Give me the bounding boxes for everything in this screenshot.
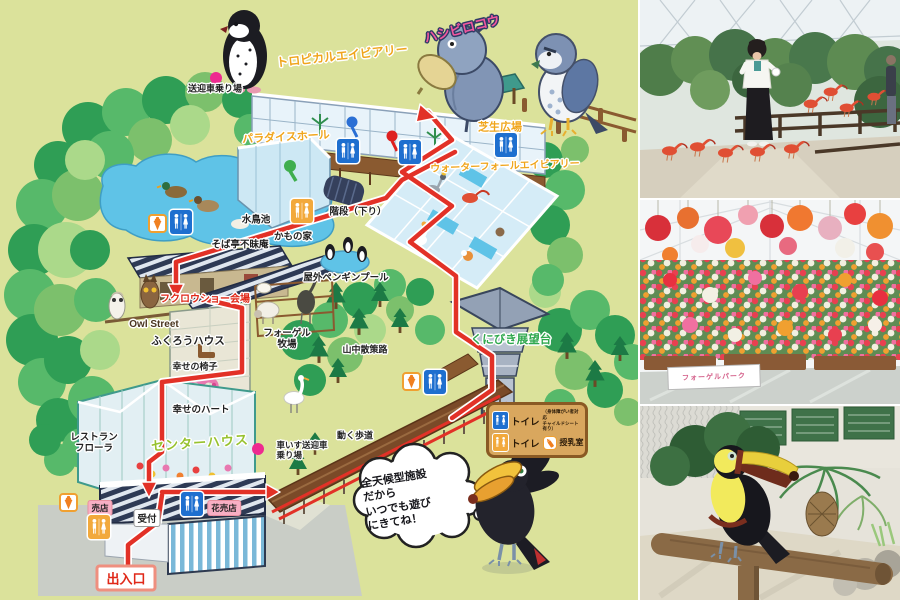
photo-strip: フォーゲルパーク bbox=[638, 0, 900, 600]
label-owl-show: フクロウショー会場 bbox=[160, 294, 250, 306]
label-trail: 山中散策路 bbox=[342, 345, 387, 356]
label-soba: そば亭不昧庵 bbox=[211, 239, 268, 250]
toilet-icon bbox=[170, 210, 192, 234]
legend-toilet-note: （身体障がい者対応 チャイルドシート有り） bbox=[543, 409, 581, 432]
photo-scarlet-ibis-feeding bbox=[640, 0, 900, 198]
label-duck-house: かもの家 bbox=[274, 231, 312, 242]
label-ranch: フォーゲル 牧場 bbox=[263, 328, 311, 350]
screenshot-root: 送迎車乗り場 トロピカルエイビアリー ハシビロコウ 芝生広場 パラダイスホール … bbox=[0, 0, 900, 600]
photo-toucan bbox=[640, 406, 900, 600]
penguin-mascot bbox=[220, 10, 267, 94]
toilet-icon bbox=[88, 515, 110, 539]
map-legend: トイレ （身体障がい者対応 チャイルドシート有り） トイレ 授乳室 bbox=[486, 402, 588, 458]
label-happy-chair: 幸せの椅子 bbox=[172, 362, 217, 373]
label-flower-shop: 花売店 bbox=[208, 501, 240, 515]
legend-nursing-label: 授乳室 bbox=[560, 437, 584, 448]
label-shuttle-stop: 送迎車乗り場 bbox=[188, 84, 242, 95]
toilet-icon bbox=[493, 412, 508, 429]
toilet-icon bbox=[291, 199, 313, 223]
toilet-icon bbox=[493, 434, 508, 451]
label-owl-street: Owl Street bbox=[129, 319, 178, 331]
toilet-icon bbox=[495, 133, 517, 157]
shuttle-stop-dot bbox=[210, 72, 222, 84]
label-moving-walkway: 動く歩道 bbox=[337, 431, 373, 442]
toilet-icon bbox=[424, 370, 446, 394]
label-reception: 受付 bbox=[134, 510, 159, 526]
park-map: 送迎車乗り場 トロピカルエイビアリー ハシビロコウ 芝生広場 パラダイスホール … bbox=[0, 0, 638, 600]
legend-toilet2-label: トイレ bbox=[511, 436, 540, 450]
legend-row-accessible-toilet: トイレ （身体障がい者対応 チャイルドシート有り） bbox=[493, 409, 581, 432]
soft-cream-icon bbox=[59, 493, 78, 512]
penguin-pool bbox=[321, 237, 369, 273]
soft-cream-icon bbox=[402, 372, 421, 391]
label-wheelchair-stop: 車いす送迎車 乗り場 bbox=[276, 440, 327, 460]
label-pond: 水鳥池 bbox=[242, 214, 271, 225]
label-penguin-pool: 屋外ペンギンプール bbox=[303, 272, 388, 283]
label-happy-heart: 幸せのハート bbox=[172, 404, 229, 415]
photo-begonia-garden: フォーゲルパーク bbox=[640, 200, 900, 404]
label-shop: 売店 bbox=[88, 501, 111, 515]
label-stairs-down: 階段（下り） bbox=[329, 206, 386, 217]
label-observatory: くにびき展望台 bbox=[471, 334, 552, 348]
legend-toilet-label: トイレ bbox=[511, 414, 540, 428]
legend-row-toilet-nursing: トイレ 授乳室 bbox=[493, 434, 581, 451]
soft-cream-icon bbox=[148, 214, 167, 233]
wheelchair-stop-dot bbox=[252, 443, 264, 455]
toilet-icon bbox=[181, 492, 203, 516]
toilet-icon bbox=[337, 139, 359, 163]
entrance-sign: 出入口 bbox=[95, 565, 156, 592]
toilet-icon bbox=[399, 140, 421, 164]
label-restaurant: レストラン フローラ bbox=[70, 432, 118, 454]
label-owl-house: ふくろうハウス bbox=[151, 335, 225, 347]
nursing-bottle-icon bbox=[543, 436, 557, 450]
